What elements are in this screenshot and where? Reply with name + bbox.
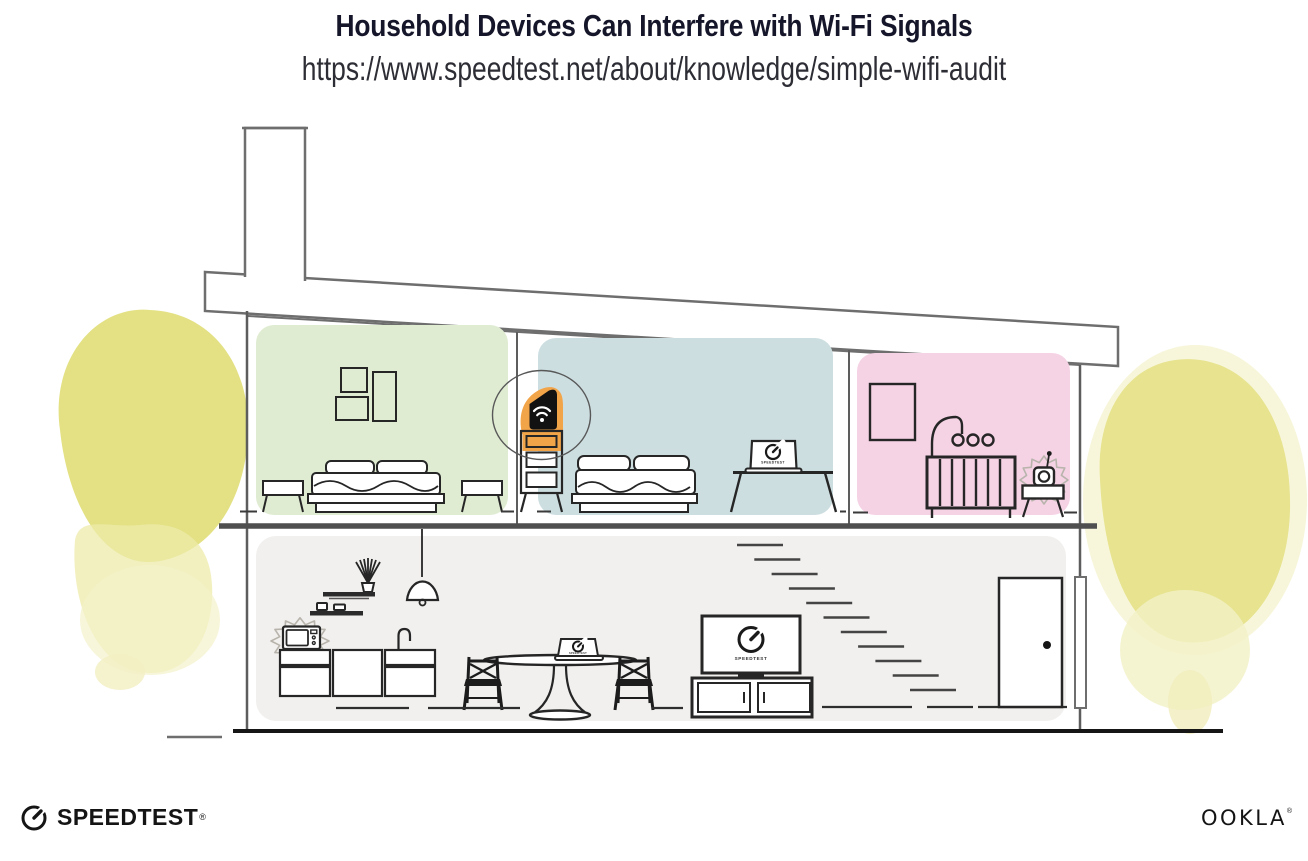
- shelf: [310, 611, 363, 616]
- chimney: [245, 128, 305, 281]
- tree-blob: [95, 654, 145, 690]
- registered-mark: ®: [1287, 808, 1292, 815]
- speedtest-wordmark: SPEEDTEST: [57, 804, 198, 831]
- bed-base: [572, 494, 697, 503]
- media-console: [692, 678, 812, 717]
- tv-screen-label: SPEEDTEST: [735, 656, 768, 661]
- house-cutaway-illustration: SPEEDTEST: [0, 0, 1308, 861]
- downspout: [1075, 577, 1086, 708]
- bed-base: [308, 494, 444, 503]
- door-knob: [1043, 641, 1051, 649]
- tree-blob: [1168, 670, 1212, 734]
- pillow: [578, 456, 630, 471]
- dresser-drawer: [527, 473, 557, 488]
- door: [999, 578, 1062, 707]
- page: { "header": { "title": "Household Device…: [0, 0, 1308, 861]
- bed: [308, 461, 444, 512]
- ground: [167, 731, 1223, 737]
- bed-base-lower: [316, 503, 436, 512]
- antenna-tip: [1047, 451, 1052, 456]
- laptop-screen-label: SPEEDTEST: [569, 651, 587, 655]
- bed-base-lower: [580, 503, 688, 512]
- laptop: SPEEDTEST: [555, 639, 603, 660]
- cup: [317, 603, 327, 610]
- ookla-wordmark: OOKLA: [1201, 806, 1287, 830]
- laptop-base: [555, 656, 603, 660]
- laptop-screen-label: SPEEDTEST: [761, 461, 785, 465]
- pillow: [634, 456, 689, 471]
- laptop-base: [746, 469, 802, 473]
- ookla-logo: OOKLA®: [1201, 806, 1292, 830]
- registered-mark: ®: [199, 812, 206, 822]
- bed: [572, 456, 697, 512]
- foliage-left: [59, 310, 249, 690]
- laptop: SPEEDTEST: [746, 441, 802, 473]
- microwave: [283, 627, 320, 650]
- header: Household Devices Can Interfere with Wi-…: [0, 0, 1308, 88]
- page-title: Household Devices Can Interfere with Wi-…: [98, 8, 1210, 44]
- speedtest-gauge-icon: [18, 801, 50, 833]
- speedtest-logo: SPEEDTEST®: [18, 801, 206, 833]
- tv: SPEEDTEST: [702, 616, 800, 675]
- foliage-right: [1083, 345, 1307, 734]
- shelf: [323, 592, 375, 597]
- source-url: https://www.speedtest.net/about/knowledg…: [131, 50, 1177, 88]
- kitchen-cabinets: [280, 650, 435, 696]
- tv-screen: [702, 616, 800, 673]
- bowl: [334, 605, 345, 611]
- mattress: [312, 473, 440, 495]
- tree-blob: [80, 565, 220, 675]
